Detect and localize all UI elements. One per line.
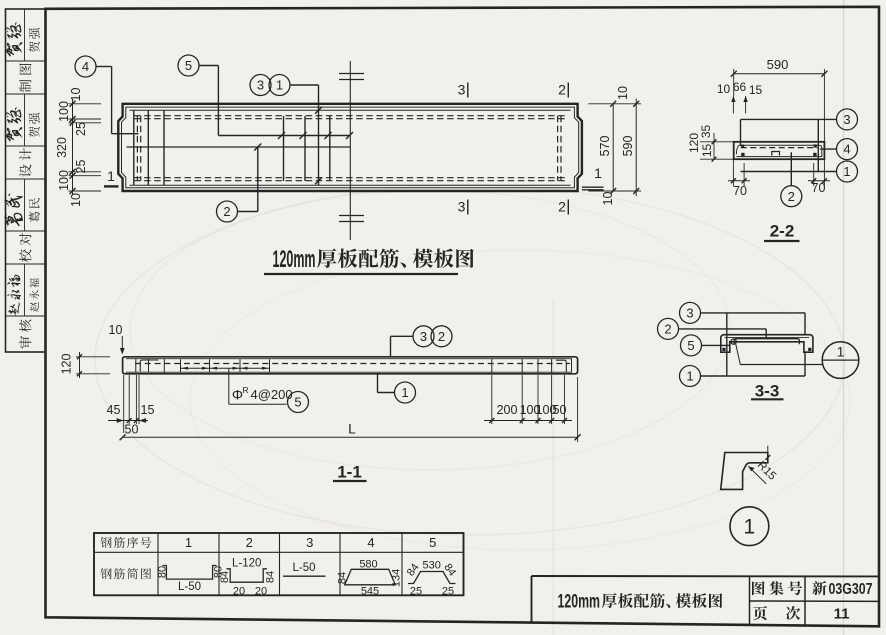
svg-text:100: 100 — [57, 170, 71, 191]
svg-text:5: 5 — [429, 535, 436, 550]
svg-text:2: 2 — [788, 189, 795, 204]
svg-text:84: 84 — [219, 571, 231, 583]
svg-text:2: 2 — [438, 329, 445, 344]
svg-text:530: 530 — [423, 559, 441, 571]
svg-text:1: 1 — [276, 78, 283, 93]
svg-text:20: 20 — [255, 585, 267, 597]
svg-text:15: 15 — [141, 403, 155, 417]
svg-text:35: 35 — [699, 125, 713, 139]
svg-text:25: 25 — [410, 585, 422, 597]
svg-text:2: 2 — [558, 82, 566, 98]
svg-text:1: 1 — [107, 168, 115, 184]
svg-text:45: 45 — [107, 403, 121, 417]
svg-text:10: 10 — [69, 88, 83, 102]
svg-text:120: 120 — [60, 354, 74, 375]
svg-text:5: 5 — [687, 338, 694, 353]
svg-text:70: 70 — [812, 181, 826, 195]
svg-text:4: 4 — [843, 142, 850, 157]
svg-text:580: 580 — [359, 558, 377, 570]
svg-text:5: 5 — [294, 395, 301, 410]
svg-text:1: 1 — [185, 535, 192, 550]
svg-text:10: 10 — [69, 193, 83, 207]
svg-text:3: 3 — [306, 535, 313, 550]
svg-text:200: 200 — [497, 403, 518, 417]
svg-text:4: 4 — [367, 535, 374, 550]
svg-text:3: 3 — [420, 329, 427, 344]
svg-text:L: L — [348, 421, 356, 437]
svg-text:84: 84 — [264, 571, 276, 583]
svg-text:1: 1 — [686, 369, 693, 384]
svg-text:3: 3 — [843, 112, 850, 127]
svg-text:Φ: Φ — [232, 387, 243, 403]
svg-text:100: 100 — [57, 101, 71, 122]
svg-text:15: 15 — [700, 144, 714, 158]
svg-text:3: 3 — [458, 82, 466, 98]
svg-text:10: 10 — [717, 82, 731, 96]
svg-text:3: 3 — [686, 306, 693, 321]
svg-text:R: R — [242, 385, 248, 395]
svg-text:84: 84 — [336, 572, 348, 584]
svg-text:15: 15 — [749, 83, 763, 97]
svg-text:320: 320 — [55, 137, 69, 158]
svg-text:570: 570 — [598, 136, 612, 157]
svg-text:3-3: 3-3 — [755, 381, 780, 400]
svg-text:70: 70 — [733, 184, 747, 198]
svg-text:4@200: 4@200 — [251, 387, 293, 402]
svg-text:10: 10 — [616, 86, 630, 100]
svg-text:4: 4 — [82, 59, 89, 74]
svg-text:1: 1 — [843, 164, 850, 179]
svg-text:50: 50 — [125, 423, 139, 437]
svg-text:1: 1 — [837, 344, 845, 360]
svg-text:2: 2 — [558, 199, 566, 215]
svg-text:2: 2 — [246, 535, 253, 550]
svg-text:66: 66 — [733, 80, 747, 94]
svg-text:1: 1 — [401, 385, 408, 400]
svg-text:120mm: 120mm — [273, 246, 316, 273]
svg-text:10: 10 — [109, 323, 123, 337]
svg-text:3: 3 — [458, 199, 466, 215]
svg-text:25: 25 — [74, 122, 88, 136]
svg-text:L-50: L-50 — [178, 581, 201, 593]
svg-text:2: 2 — [664, 322, 671, 337]
svg-text:1: 1 — [744, 516, 756, 539]
svg-text:590: 590 — [767, 57, 789, 72]
svg-text:2: 2 — [223, 204, 230, 219]
svg-text:2-2: 2-2 — [770, 222, 795, 241]
svg-text:80: 80 — [156, 566, 168, 578]
svg-text:3: 3 — [257, 78, 264, 93]
svg-text:25: 25 — [74, 160, 88, 174]
svg-text:1: 1 — [594, 165, 602, 181]
svg-text:5: 5 — [185, 58, 192, 73]
svg-text:L-120: L-120 — [232, 558, 261, 570]
svg-text:1-1: 1-1 — [337, 463, 362, 482]
svg-text:L-50: L-50 — [292, 562, 315, 574]
svg-text:50: 50 — [553, 403, 567, 417]
svg-text:11: 11 — [834, 606, 850, 623]
svg-text:120mm: 120mm — [558, 592, 601, 613]
svg-text:03G307: 03G307 — [829, 581, 873, 598]
svg-text:20: 20 — [233, 585, 245, 597]
svg-text:25: 25 — [442, 585, 454, 597]
svg-text:10: 10 — [601, 192, 615, 206]
svg-text:134: 134 — [390, 569, 402, 587]
svg-text:545: 545 — [361, 586, 379, 598]
svg-text:590: 590 — [621, 136, 635, 157]
